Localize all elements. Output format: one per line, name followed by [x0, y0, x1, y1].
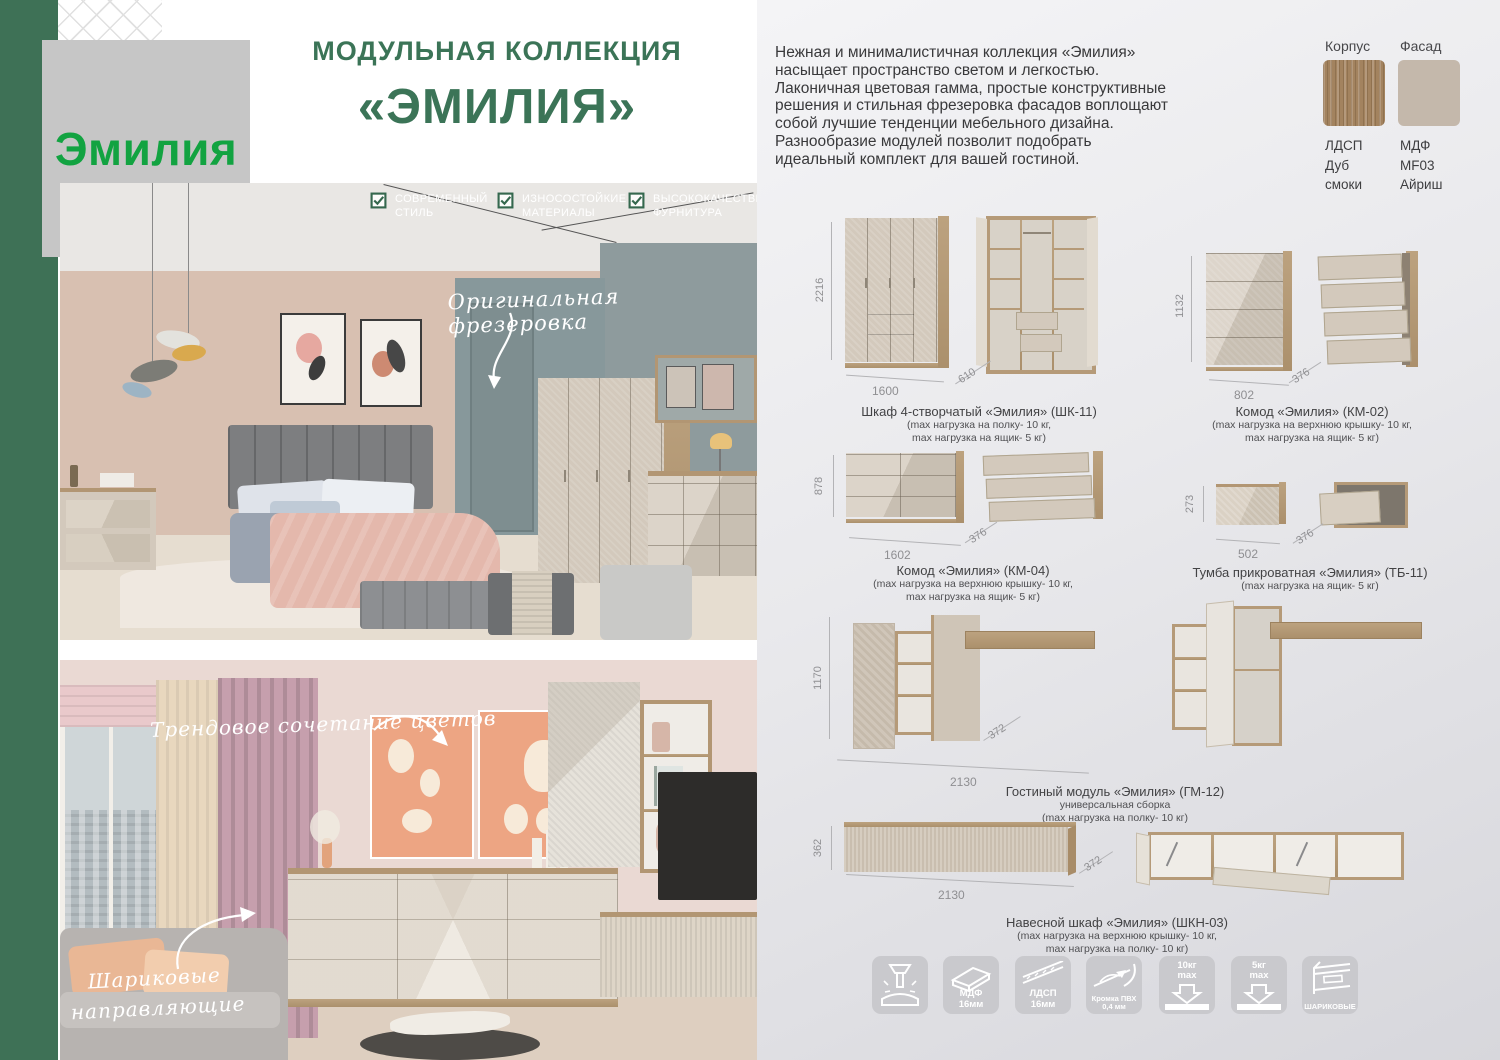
product-name: Гостиный модуль «Эмилия» (ГМ-12): [965, 784, 1265, 799]
korpus-line3: смоки: [1325, 175, 1362, 195]
milling-icon: [878, 961, 922, 1009]
feature-1-line1: СОВРЕМЕННЫЙ: [395, 192, 488, 206]
product-note: max нагрузка на ящик- 5 кг): [829, 432, 1129, 445]
badge-mdf-line1: МДФ: [943, 989, 999, 999]
fasad-material-lines: МДФ MF03 Айриш: [1400, 136, 1442, 195]
nightstand-decor: [70, 465, 78, 487]
dim-line: [831, 826, 832, 870]
nightstand-books: [100, 473, 134, 487]
pouf-throw: [512, 571, 552, 635]
product-caption-km04: Комод «Эмилия» (КМ-04) (max нагрузка на …: [823, 563, 1123, 603]
tv: [658, 772, 757, 900]
bedroom-annotation-arrow: [480, 311, 532, 393]
badge-load-10kg: 10кг max: [1159, 956, 1215, 1014]
dim-width-km02: 802: [1234, 388, 1254, 402]
product-note: (max нагрузка на верхнюю крышку- 10 кг,: [1162, 419, 1462, 432]
chest-km02-closed-render: [1206, 251, 1292, 371]
brand-logo-text: Эмилия: [55, 122, 237, 176]
intro-paragraph: Нежная и минималистичная коллекция «Эмил…: [775, 44, 1171, 169]
dried-flowers: [310, 810, 340, 868]
pouf-light: [600, 565, 692, 640]
dim-line: [833, 455, 834, 517]
checkbox-icon: [497, 192, 514, 209]
ball-guides-icon: [1306, 960, 1354, 998]
dim-height-km02: 1132: [1174, 294, 1186, 318]
dim-width-tb11: 502: [1238, 547, 1258, 561]
wardrobe-open-render: [976, 216, 1098, 370]
product-caption-tb11: Тумба прикроватная «Эмилия» (ТБ-11) (max…: [1160, 565, 1460, 593]
korpus-swatch: [1323, 60, 1385, 126]
table-lamp: [708, 433, 734, 471]
badge-ball-line1: ШАРИКОВЫЕ: [1302, 1003, 1358, 1011]
fasad-swatch: [1398, 60, 1460, 126]
korpus-line1: ЛДСП: [1325, 136, 1362, 156]
chest-km04-open-render: [983, 451, 1103, 525]
badge-pvc-line2: 0,4 мм: [1086, 1003, 1142, 1011]
shelf-bar: [1165, 1004, 1209, 1010]
product-note: (max нагрузка на ящик- 5 кг): [1160, 580, 1460, 593]
bedroom-dresser: [648, 471, 757, 576]
living-dresser: [288, 868, 618, 999]
bedroom-mirror: [655, 355, 757, 423]
living-module-render-open: [1158, 602, 1420, 754]
down-arrow-icon: [1242, 983, 1276, 1005]
chest-km04-closed-render: [846, 451, 964, 523]
korpus-label: Корпус: [1325, 38, 1370, 54]
wall-cabinet-open-render: [1148, 832, 1403, 890]
living-annotation-bottom-arrow: [172, 905, 264, 973]
pvc-edge-icon: [1090, 960, 1138, 990]
badge-5kg-line2: max: [1231, 971, 1287, 981]
dim-height-shk11: 2216: [814, 278, 826, 302]
wall-cabinet-closed-render: [844, 822, 1076, 876]
tv-console: [600, 912, 757, 997]
bedroom-poster-2: [360, 319, 422, 407]
dim-line: [1191, 256, 1192, 362]
fasad-line1: МДФ: [1400, 136, 1442, 156]
product-name: Комод «Эмилия» (КМ-02): [1162, 404, 1462, 419]
dim-line: [829, 617, 830, 739]
feature-3-line2: ФУРНИТУРА: [653, 206, 757, 220]
product-note: (max нагрузка на верхнюю крышку- 10 кг,: [823, 578, 1123, 591]
feature-3-line1: ВЫСОКОКАЧЕСТВЕ: [653, 192, 757, 206]
product-caption-shk11: Шкаф 4-створчатый «Эмилия» (ШК-11) (max …: [829, 404, 1129, 444]
badge-load-5kg: 5кг max: [1231, 956, 1287, 1014]
dim-width-shk11: 1600: [872, 384, 899, 398]
living-module-render-closed: [853, 607, 1093, 755]
wardrobe-open-door-left: [976, 217, 987, 367]
page-title-line1: МОДУЛЬНАЯ КОЛЛЕКЦИЯ: [262, 36, 732, 67]
badge-mdf: МДФ 16мм: [943, 956, 999, 1014]
dim-height-gm12: 1170: [812, 666, 824, 690]
dim-height-shkn03: 362: [812, 839, 824, 857]
pendant-cord: [152, 183, 153, 373]
wall-cabinet-open-door: [1136, 833, 1150, 886]
page-title: МОДУЛЬНАЯ КОЛЛЕКЦИЯ «ЭМИЛИЯ»: [262, 36, 732, 135]
badge-ball-guides: ШАРИКОВЫЕ: [1302, 956, 1358, 1014]
badge-10kg-line2: max: [1159, 971, 1215, 981]
badge-ldsp-line2: 16мм: [1015, 1000, 1071, 1010]
korpus-line2: Дуб: [1325, 156, 1362, 176]
ldsp-icon: [1019, 961, 1067, 987]
product-subtitle: универсальная сборка: [965, 799, 1265, 812]
badge-pvc-edge: Кромка ПВХ 0,4 мм: [1086, 956, 1142, 1014]
dim-line: [1203, 486, 1204, 522]
product-caption-gm12: Гостиный модуль «Эмилия» (ГМ-12) универс…: [965, 784, 1265, 824]
bedroom-poster-1: [280, 313, 346, 405]
feature-2-line2: МАТЕРИАЛЫ: [522, 206, 626, 220]
dim-height-tb11: 273: [1184, 495, 1196, 513]
badge-ldsp: ЛДСП 16мм: [1015, 956, 1071, 1014]
feature-durable-materials: ИЗНОСОСТОЙКИЕМАТЕРИАЛЫ: [497, 192, 626, 221]
fasad-line3: Айриш: [1400, 175, 1442, 195]
wardrobe-closed-render: [845, 216, 949, 368]
product-caption-km02: Комод «Эмилия» (КМ-02) (max нагрузка на …: [1162, 404, 1462, 444]
product-note: (max нагрузка на полку- 10 кг,: [829, 419, 1129, 432]
korpus-material-lines: ЛДСП Дуб смоки: [1325, 136, 1362, 195]
feature-2-line1: ИЗНОСОСТОЙКИЕ: [522, 192, 626, 206]
product-note: max нагрузка на ящик- 5 кг): [1162, 432, 1462, 445]
product-name: Комод «Эмилия» (КМ-04): [823, 563, 1123, 578]
dim-line: [831, 222, 832, 360]
down-arrow-icon: [1170, 983, 1204, 1005]
checkbox-icon: [628, 192, 645, 209]
product-note: (max нагрузка на верхнюю крышку- 10 кг,: [967, 930, 1267, 943]
product-note: max нагрузка на полку- 10 кг): [967, 943, 1267, 956]
nightstand: [60, 488, 156, 570]
catalog-page: Эмилия МОДУЛЬНАЯ КОЛЛЕКЦИЯ «ЭМИЛИЯ» Нежн…: [0, 0, 1500, 1060]
feature-1-line2: СТИЛЬ: [395, 206, 488, 220]
nightstand-open-drawer: [1319, 490, 1381, 525]
badge-milling: [872, 956, 928, 1014]
dim-width-km04: 1602: [884, 548, 911, 562]
nightstand-open-render: [1320, 482, 1402, 526]
checkbox-icon: [370, 192, 387, 209]
dim-width-shkn03: 2130: [938, 888, 965, 902]
wall-cabinet: [548, 682, 640, 867]
badge-ldsp-line1: ЛДСП: [1015, 989, 1071, 999]
wardrobe-open-door-right: [1087, 217, 1098, 367]
pendant-cord2: [188, 183, 189, 333]
dim-height-km04: 878: [813, 477, 825, 495]
roman-shade: [60, 685, 162, 727]
chest-km02-open-render: [1318, 251, 1418, 373]
product-caption-shkn03: Навесной шкаф «Эмилия» (ШКН-03) (max наг…: [967, 915, 1267, 955]
feature-modern-style: СОВРЕМЕННЫЙСТИЛЬ: [370, 192, 488, 221]
fasad-label: Фасад: [1400, 38, 1441, 54]
product-note: max нагрузка на ящик- 5 кг): [823, 591, 1123, 604]
living-module-open-door: [1206, 601, 1234, 748]
living-photo: Трендовое сочетание цветов Шариковые нап…: [60, 660, 757, 1060]
page-title-line2: «ЭМИЛИЯ»: [262, 79, 732, 135]
product-name: Тумба прикроватная «Эмилия» (ТБ-11): [1160, 565, 1460, 580]
feature-quality-hardware: ВЫСОКОКАЧЕСТВЕФУРНИТУРА: [628, 192, 757, 221]
fasad-line2: MF03: [1400, 156, 1442, 176]
bedroom-photo: Оригинальная фрезеровка СОВРЕМЕННЫЙСТИЛЬ…: [60, 183, 757, 640]
nightstand-closed-render: [1216, 482, 1286, 524]
product-name: Шкаф 4-створчатый «Эмилия» (ШК-11): [829, 404, 1129, 419]
shelf-bar: [1237, 1004, 1281, 1010]
badge-mdf-line2: 16мм: [943, 1000, 999, 1010]
living-annotation-top-arrow: [372, 708, 452, 756]
product-name: Навесной шкаф «Эмилия» (ШКН-03): [967, 915, 1267, 930]
